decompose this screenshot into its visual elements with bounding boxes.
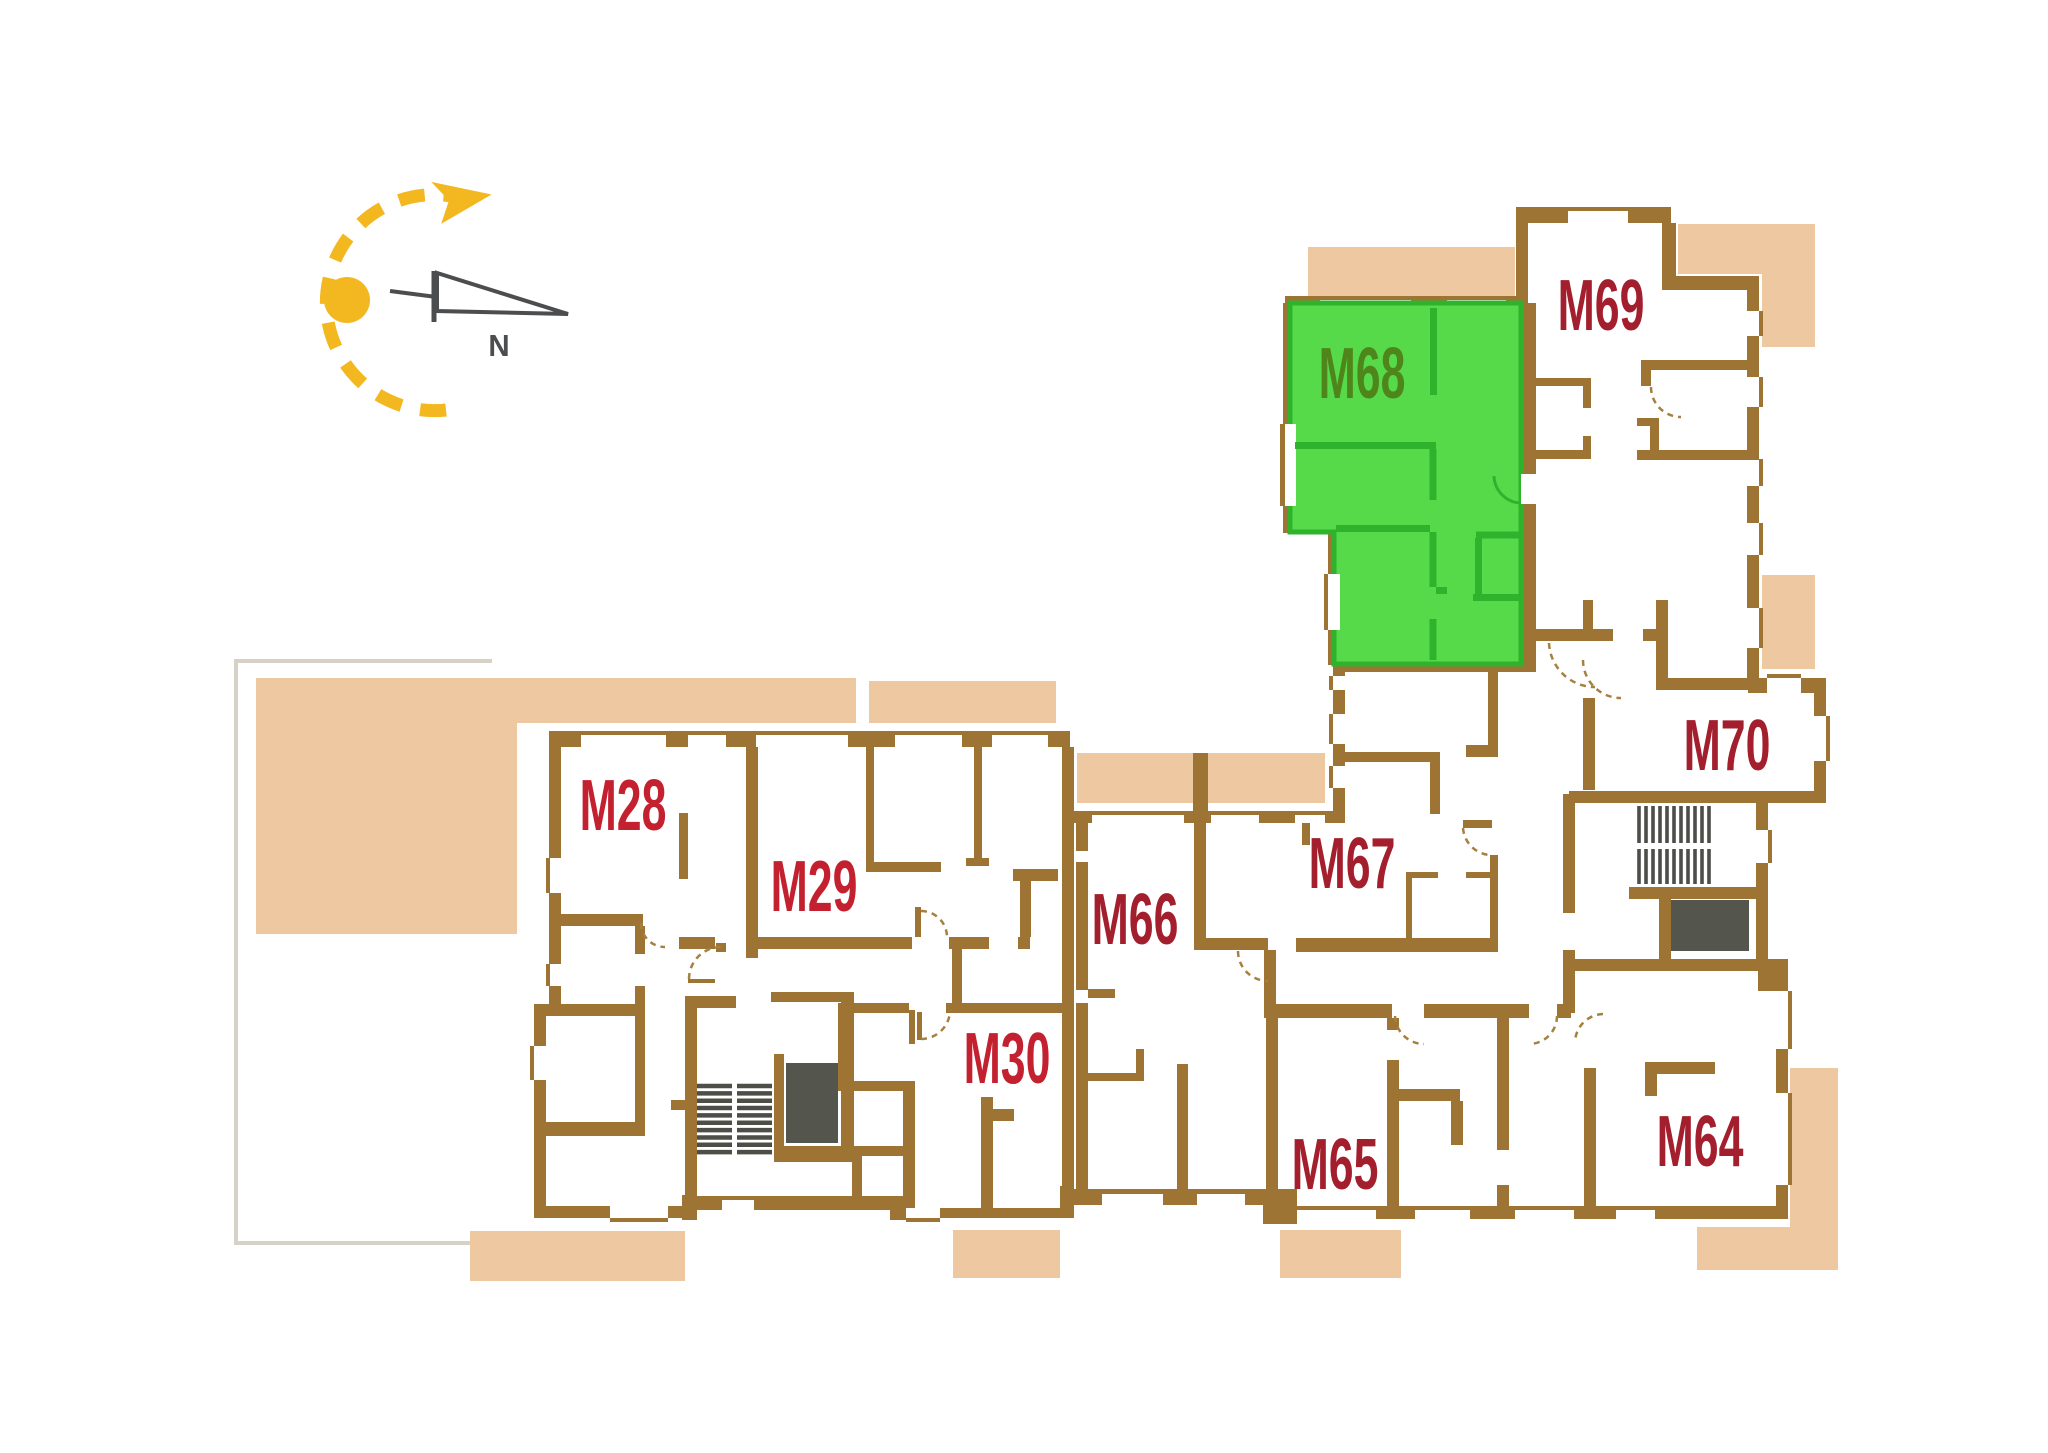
- svg-text:M28: M28: [580, 765, 667, 846]
- svg-text:M66: M66: [1092, 879, 1179, 960]
- svg-text:M65: M65: [1292, 1124, 1379, 1205]
- svg-text:N: N: [488, 329, 509, 363]
- svg-text:M67: M67: [1309, 823, 1396, 904]
- svg-text:M69: M69: [1558, 265, 1645, 346]
- svg-text:M70: M70: [1684, 705, 1771, 786]
- svg-text:M29: M29: [771, 846, 858, 927]
- svg-text:M68: M68: [1319, 333, 1406, 414]
- svg-text:M64: M64: [1657, 1101, 1744, 1182]
- svg-text:M30: M30: [964, 1018, 1051, 1099]
